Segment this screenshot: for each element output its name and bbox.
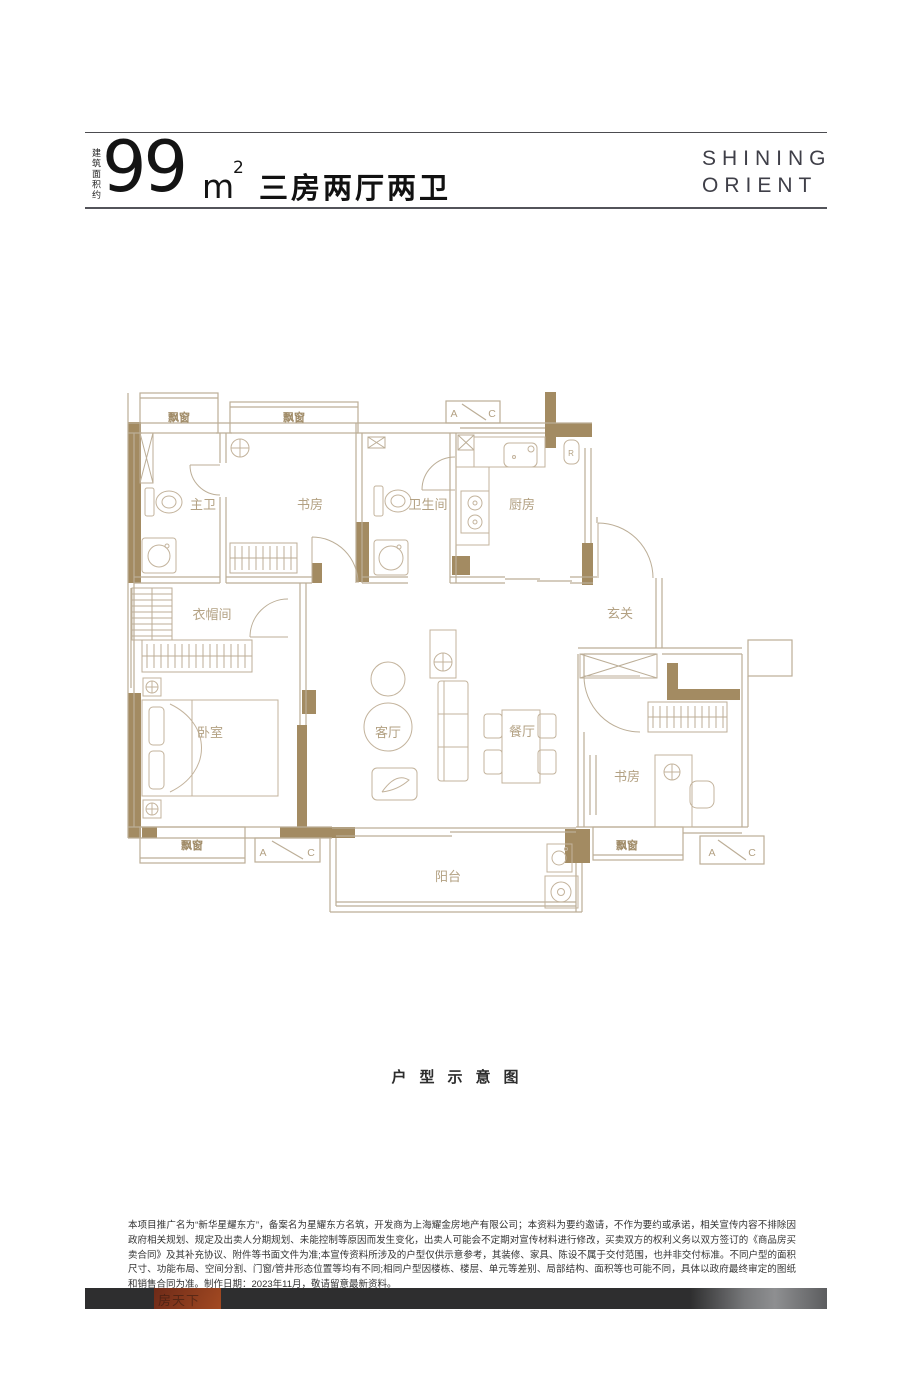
- side-table: [371, 662, 405, 696]
- bay-window-label-1: 飘窗: [168, 410, 190, 424]
- room-label-study-north: 书房: [297, 497, 323, 512]
- room-label-master-bath: 主卫: [190, 497, 216, 512]
- room-label-cloakroom: 衣帽间: [192, 607, 231, 622]
- disclaimer-text: 本项目推广名为“新华星耀东方”，备案名为星耀东方名筑，开发商为上海耀金房地产有限…: [128, 1219, 796, 1293]
- footer-watermark-seal: 房天下: [154, 1288, 221, 1309]
- nightstands: [143, 678, 161, 818]
- media-unit: [430, 630, 456, 678]
- room-label-living-room: 客厅: [375, 725, 401, 740]
- washer: [545, 876, 578, 908]
- ac2-c: C: [307, 847, 315, 859]
- bathroom-toilet: [374, 486, 411, 516]
- bay-window-label-4: 飘窗: [616, 838, 638, 852]
- tv-bench: [372, 768, 417, 800]
- kitchen-sink: [504, 443, 537, 467]
- dining-set: [484, 710, 556, 783]
- sofa: [438, 681, 468, 781]
- bay-windows: [140, 393, 683, 863]
- ac1-c: C: [488, 408, 496, 420]
- fridge-label: R: [568, 449, 574, 458]
- ac-labels: A C A C A C R: [259, 408, 756, 859]
- ac3-a: A: [708, 847, 715, 859]
- room-label-dining-room: 餐厅: [509, 724, 535, 739]
- ac3-c: C: [748, 847, 756, 859]
- room-label-bedroom: 卧室: [197, 725, 223, 740]
- footer-gradient: [690, 1288, 827, 1309]
- bay-window-labels: 飘窗 飘窗 飘窗 飘窗: [168, 410, 638, 852]
- room-labels: 主卫 书房 卫生间 厨房 衣帽间 玄关 卧室 客厅 餐厅 书房 阳台: [190, 497, 640, 884]
- footer-bar: 房天下: [85, 1288, 827, 1309]
- floorplan-drawing: 主卫 书房 卫生间 厨房 衣帽间 玄关 卧室 客厅 餐厅 书房 阳台 飘窗 飘窗…: [0, 0, 910, 1000]
- kitchen-stove: [461, 491, 489, 533]
- master-bath-toilet: [145, 488, 182, 516]
- bay-window-label-2: 飘窗: [283, 410, 305, 424]
- bed: [142, 700, 278, 796]
- ac-platforms: [255, 401, 764, 864]
- ceiling-light: [231, 439, 249, 457]
- ac1-a: A: [450, 408, 457, 420]
- bay-window-label-3: 飘窗: [181, 838, 203, 852]
- bathroom-basin: [374, 540, 408, 575]
- room-label-balcony: 阳台: [435, 869, 461, 884]
- footer-watermark-text: 房天下: [158, 1290, 200, 1309]
- room-label-bathroom: 卫生间: [408, 497, 447, 512]
- master-bath-basin: [142, 538, 176, 573]
- ac2-a: A: [259, 847, 266, 859]
- room-label-study-south: 书房: [614, 769, 640, 784]
- shaft-boxes: [140, 433, 657, 678]
- room-label-foyer: 玄关: [607, 606, 633, 621]
- room-label-kitchen: 厨房: [509, 497, 535, 512]
- plan-caption: 户型示意图: [0, 1066, 910, 1087]
- walls: [128, 393, 792, 912]
- desk: [655, 755, 714, 827]
